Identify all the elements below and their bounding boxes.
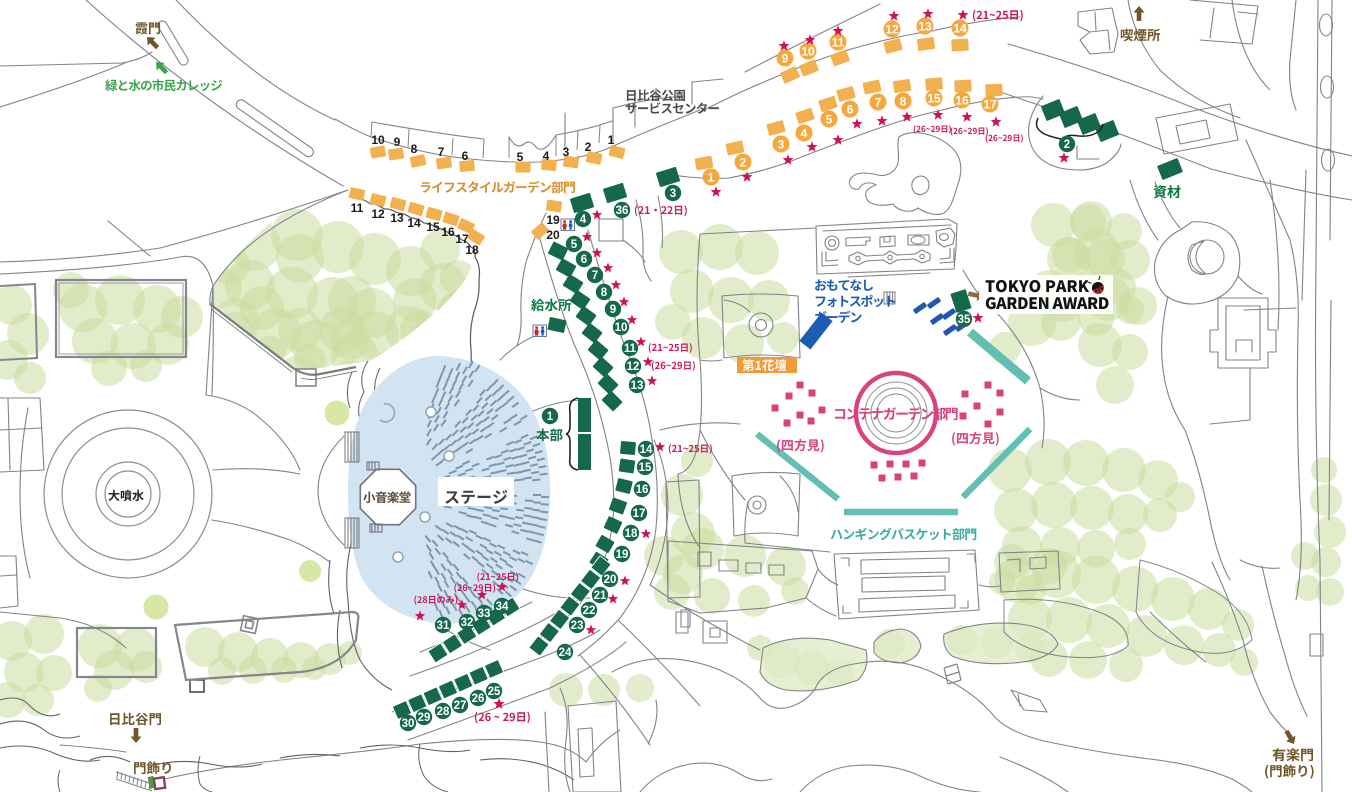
svg-text:5: 5 (517, 150, 524, 164)
svg-text:20: 20 (604, 574, 617, 586)
svg-text:15: 15 (927, 91, 941, 105)
svg-text:9: 9 (782, 51, 789, 65)
svg-text:9: 9 (610, 304, 616, 316)
svg-text:7: 7 (592, 270, 598, 282)
svg-text:32: 32 (461, 617, 474, 629)
svg-text:27: 27 (454, 700, 467, 712)
svg-text:17: 17 (633, 508, 646, 520)
svg-text:16: 16 (955, 93, 969, 107)
svg-text:4: 4 (543, 149, 550, 163)
svg-text:6: 6 (847, 102, 854, 116)
svg-text:29: 29 (418, 712, 431, 724)
svg-text:34: 34 (496, 601, 509, 613)
svg-text:33: 33 (478, 608, 491, 620)
svg-text:19: 19 (616, 549, 629, 561)
svg-text:10: 10 (371, 133, 385, 147)
svg-text:10: 10 (801, 44, 815, 58)
svg-text:8: 8 (900, 94, 907, 108)
svg-text:13: 13 (631, 380, 644, 392)
svg-text:12: 12 (371, 207, 385, 221)
svg-text:15: 15 (639, 462, 652, 474)
svg-text:11: 11 (351, 201, 364, 215)
svg-text:7: 7 (438, 145, 445, 159)
svg-text:10: 10 (615, 322, 628, 334)
svg-text:4: 4 (801, 126, 808, 140)
svg-text:11: 11 (832, 35, 845, 49)
svg-text:7: 7 (875, 95, 882, 109)
svg-text:16: 16 (441, 225, 455, 239)
svg-text:4: 4 (580, 214, 587, 226)
svg-text:1: 1 (547, 411, 554, 423)
svg-text:18: 18 (465, 243, 479, 257)
svg-text:14: 14 (407, 216, 421, 230)
svg-text:19: 19 (546, 213, 560, 227)
svg-text:35: 35 (958, 314, 971, 326)
svg-text:2: 2 (740, 155, 747, 169)
svg-text:30: 30 (402, 718, 415, 730)
svg-text:3: 3 (563, 145, 570, 159)
svg-text:8: 8 (601, 287, 608, 299)
svg-text:18: 18 (625, 528, 638, 540)
svg-text:1: 1 (608, 133, 615, 147)
svg-text:11: 11 (624, 343, 637, 355)
svg-text:6: 6 (462, 149, 469, 163)
svg-text:24: 24 (559, 647, 572, 659)
svg-text:26: 26 (472, 693, 485, 705)
svg-text:6: 6 (581, 254, 587, 266)
svg-text:20: 20 (546, 228, 560, 242)
svg-text:23: 23 (571, 620, 584, 632)
svg-text:17: 17 (983, 97, 997, 111)
svg-text:13: 13 (918, 19, 932, 33)
svg-text:2: 2 (1064, 139, 1070, 151)
svg-text:31: 31 (437, 620, 450, 632)
svg-text:25: 25 (488, 686, 501, 698)
svg-text:2: 2 (585, 140, 592, 154)
svg-text:15: 15 (426, 220, 440, 234)
svg-text:9: 9 (394, 135, 401, 149)
svg-text:5: 5 (571, 239, 578, 251)
svg-text:5: 5 (826, 112, 833, 126)
svg-text:28: 28 (437, 706, 450, 718)
svg-text:36: 36 (616, 205, 629, 217)
svg-text:14: 14 (640, 444, 653, 456)
svg-text:12: 12 (627, 361, 640, 373)
svg-text:8: 8 (411, 142, 418, 156)
svg-text:16: 16 (636, 484, 649, 496)
svg-text:3: 3 (778, 137, 785, 151)
svg-text:1: 1 (708, 170, 715, 184)
svg-text:21: 21 (594, 590, 607, 602)
svg-text:13: 13 (390, 211, 404, 225)
svg-text:12: 12 (885, 22, 899, 36)
svg-text:3: 3 (670, 188, 676, 200)
svg-text:22: 22 (583, 605, 596, 617)
svg-text:14: 14 (953, 21, 967, 35)
